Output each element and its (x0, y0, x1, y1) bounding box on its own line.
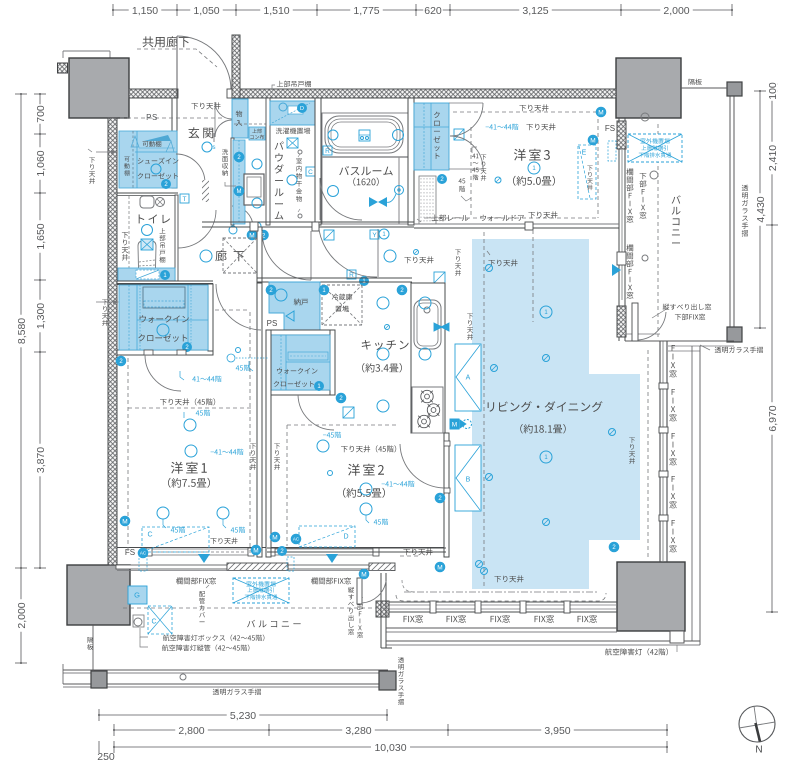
svg-text:M: M (361, 571, 366, 578)
svg-text:FS: FS (605, 124, 615, 133)
svg-text:M: M (590, 137, 595, 144)
svg-text:250: 250 (97, 751, 115, 763)
svg-text:700: 700 (35, 105, 47, 123)
svg-text:M: M (253, 547, 258, 554)
svg-text:2,800: 2,800 (178, 725, 204, 737)
svg-text:2,410: 2,410 (767, 145, 779, 171)
svg-text:A: A (466, 375, 471, 382)
svg-text:1,150: 1,150 (132, 5, 158, 17)
svg-text:1,050: 1,050 (193, 5, 219, 17)
svg-text:C: C (308, 169, 313, 176)
svg-text:4,430: 4,430 (755, 196, 767, 222)
svg-text:3,280: 3,280 (345, 725, 371, 737)
svg-text:2,000: 2,000 (16, 602, 28, 628)
svg-text:M: M (598, 109, 603, 116)
svg-text:M: M (122, 518, 127, 525)
svg-text:1,510: 1,510 (263, 5, 289, 17)
svg-text:620: 620 (424, 5, 442, 17)
svg-text:3,870: 3,870 (35, 447, 47, 473)
svg-text:T: T (183, 196, 187, 203)
svg-text:1,650: 1,650 (35, 223, 47, 249)
svg-text:M: M (437, 564, 442, 571)
svg-text:M: M (452, 421, 457, 428)
svg-text:2,000: 2,000 (663, 5, 689, 17)
svg-text:1,775: 1,775 (353, 5, 379, 17)
svg-text:100: 100 (767, 82, 779, 100)
svg-text:3,950: 3,950 (544, 725, 570, 737)
svg-text:AC: AC (140, 551, 147, 556)
svg-text:M: M (237, 189, 242, 195)
svg-text:D: D (300, 106, 304, 112)
svg-text:R: R (325, 148, 330, 155)
svg-text:AC: AC (293, 537, 300, 542)
svg-text:D: D (343, 534, 348, 541)
svg-text:PS: PS (267, 319, 278, 328)
svg-text:Y: Y (372, 232, 377, 239)
svg-text:5,230: 5,230 (230, 710, 256, 722)
svg-text:G: G (134, 591, 140, 600)
svg-text:B: B (466, 477, 471, 484)
svg-text:s: s (213, 145, 216, 151)
svg-text:8,580: 8,580 (16, 318, 28, 344)
svg-text:3,125: 3,125 (522, 5, 548, 17)
svg-text:6,970: 6,970 (767, 405, 779, 431)
svg-text:10,030: 10,030 (374, 742, 406, 754)
svg-text:PS: PS (146, 113, 158, 122)
svg-text:FS: FS (125, 548, 135, 557)
svg-text:1,300: 1,300 (35, 303, 47, 329)
svg-text:C: C (151, 619, 156, 626)
svg-text:N: N (755, 745, 762, 756)
svg-text:M: M (272, 534, 277, 541)
svg-text:1,060: 1,060 (35, 150, 47, 176)
svg-text:C: C (147, 532, 152, 539)
svg-text:E: E (582, 150, 587, 157)
